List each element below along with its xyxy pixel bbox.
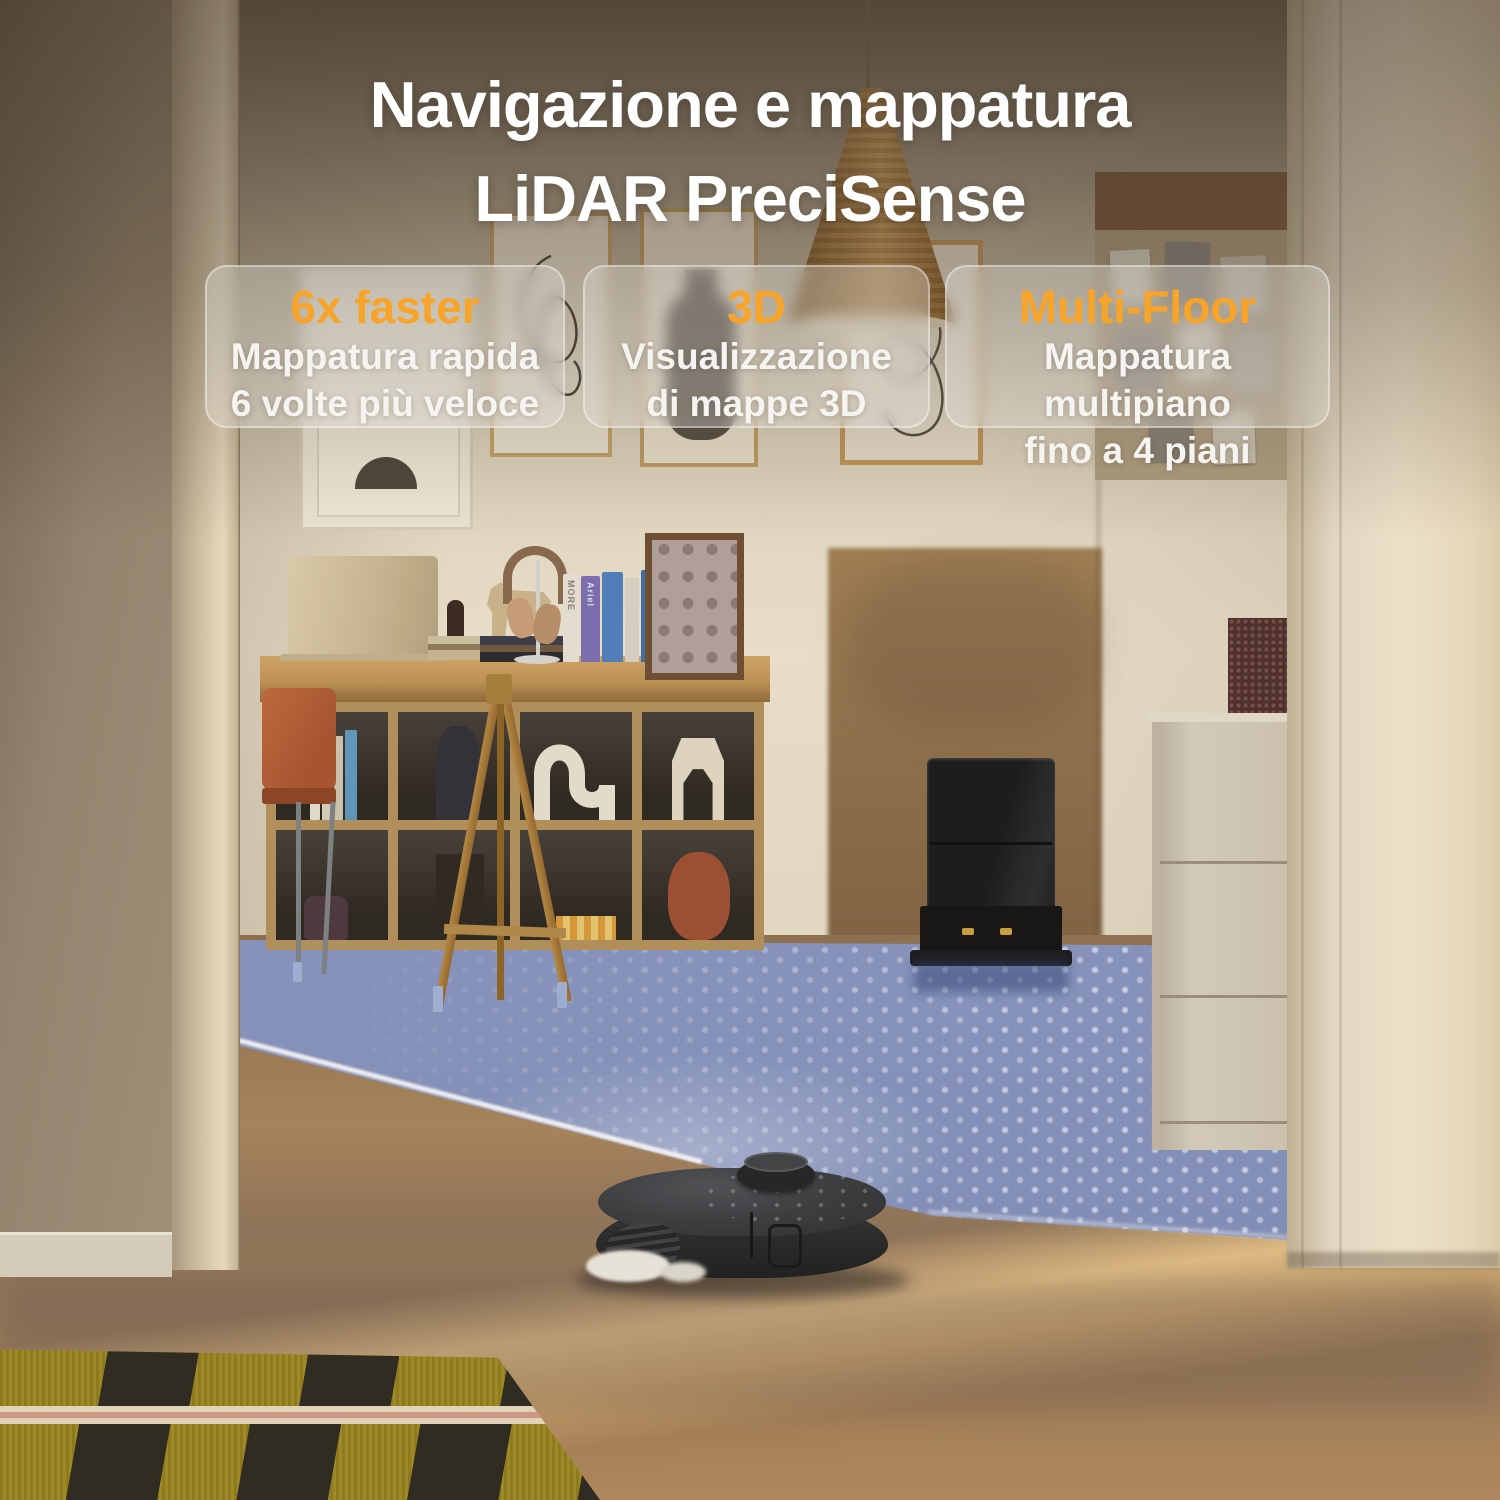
feature-card-headline: 6x faster xyxy=(207,281,563,333)
headline: Navigazione e mappatura LiDAR PreciSense xyxy=(0,58,1500,246)
feature-card-headline: Multi-Floor xyxy=(947,281,1328,333)
headline-line2: LiDAR PreciSense xyxy=(0,152,1500,246)
headline-line1: Navigazione e mappatura xyxy=(0,58,1500,152)
product-marketing-image: MORE Ariel xyxy=(0,0,1500,1500)
feature-card-text: Visualizzazione xyxy=(585,333,928,380)
feature-card-text: 6 volte più veloce xyxy=(207,380,563,427)
feature-card-text: fino a 4 piani xyxy=(947,427,1328,474)
feature-card-text: Mappatura multipiano xyxy=(947,333,1328,427)
feature-card-headline: 3D xyxy=(585,281,928,333)
feature-card-multi-floor: Multi-Floor Mappatura multipiano fino a … xyxy=(945,265,1330,428)
feature-card-text: di mappe 3D xyxy=(585,380,928,427)
feature-card-text: Mappatura rapida xyxy=(207,333,563,380)
feature-card-3d: 3D Visualizzazione di mappe 3D xyxy=(583,265,930,428)
feature-card-6x-faster: 6x faster Mappatura rapida 6 volte più v… xyxy=(205,265,565,428)
